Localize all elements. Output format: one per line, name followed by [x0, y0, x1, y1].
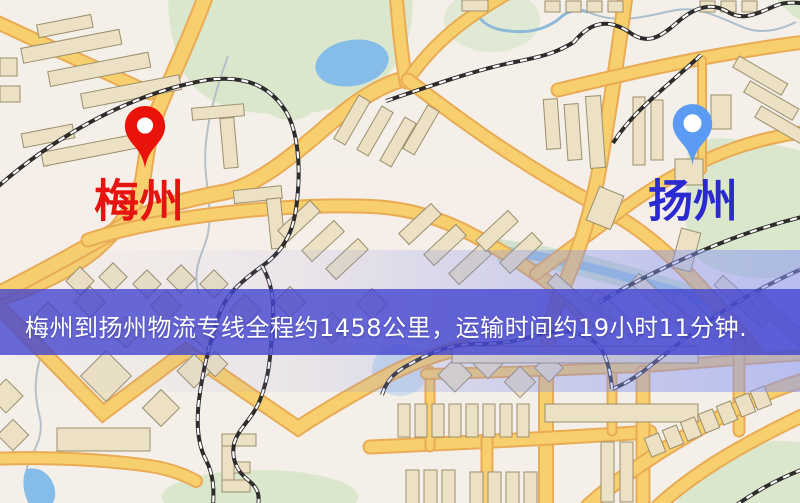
route-map-image[interactable]: 梅州 扬州 梅州到扬州物流专线全程约1458公里，运输时间约19小时11分钟.: [0, 0, 800, 503]
map-canvas[interactable]: [0, 0, 800, 503]
blue-map-pin-icon[interactable]: [668, 103, 717, 166]
destination-city-label: 扬州: [648, 179, 738, 224]
red-map-pin-icon[interactable]: [122, 103, 168, 171]
origin-city-label: 梅州: [94, 179, 184, 224]
route-info-banner: 梅州到扬州物流专线全程约1458公里，运输时间约19小时11分钟.: [0, 289, 800, 355]
route-info-text: 梅州到扬州物流专线全程约1458公里，运输时间约19小时11分钟.: [25, 301, 747, 343]
